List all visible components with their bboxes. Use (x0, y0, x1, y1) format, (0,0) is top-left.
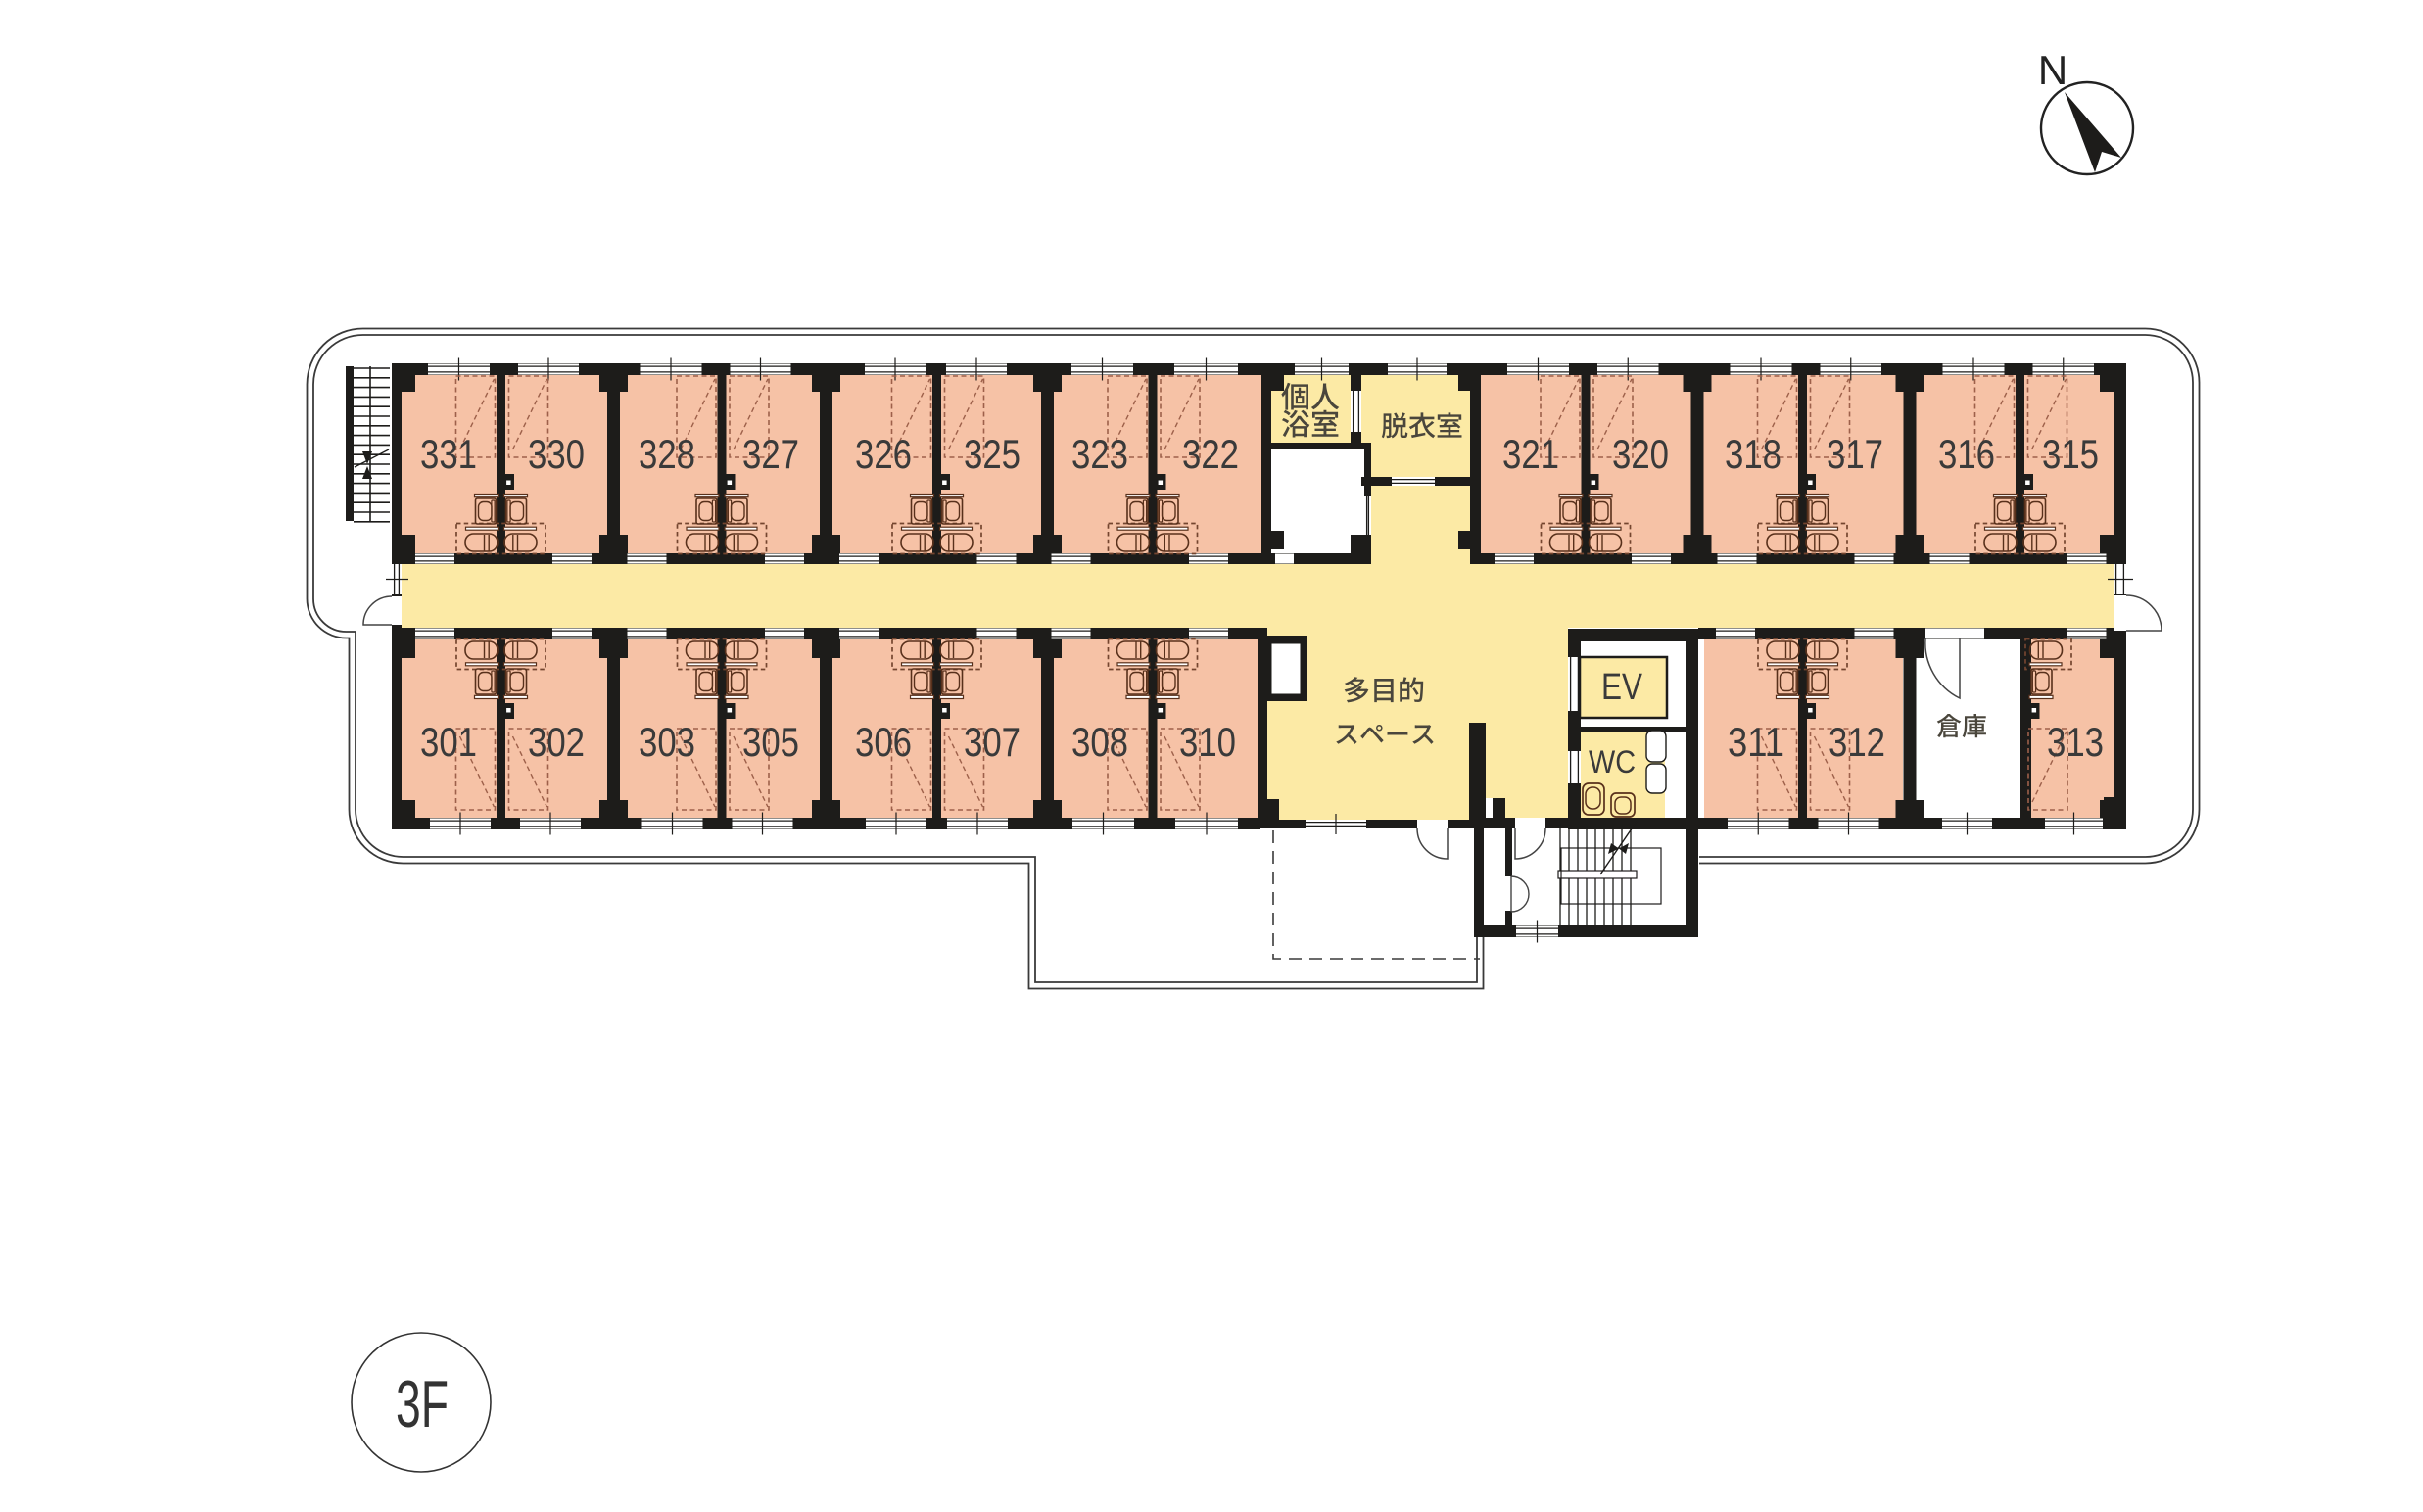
svg-text:322: 322 (1182, 431, 1239, 477)
svg-text:N: N (2038, 47, 2067, 93)
svg-text:327: 327 (742, 431, 799, 477)
svg-text:320: 320 (1612, 431, 1669, 477)
svg-text:303: 303 (639, 719, 695, 765)
svg-text:302: 302 (528, 719, 585, 765)
svg-text:331: 331 (420, 431, 477, 477)
svg-text:305: 305 (742, 719, 799, 765)
svg-text:306: 306 (855, 719, 912, 765)
svg-text:323: 323 (1071, 431, 1128, 477)
svg-text:312: 312 (1829, 719, 1885, 765)
svg-text:WC: WC (1589, 744, 1636, 780)
svg-text:321: 321 (1502, 431, 1559, 477)
svg-text:311: 311 (1728, 719, 1784, 765)
svg-text:3F: 3F (396, 1367, 449, 1441)
svg-text:301: 301 (420, 719, 477, 765)
svg-text:310: 310 (1179, 719, 1236, 765)
svg-text:315: 315 (2042, 431, 2099, 477)
svg-text:313: 313 (2047, 719, 2104, 765)
svg-text:318: 318 (1725, 431, 1782, 477)
svg-text:326: 326 (855, 431, 912, 477)
svg-text:EV: EV (1601, 667, 1643, 708)
svg-text:330: 330 (528, 431, 585, 477)
svg-text:317: 317 (1827, 431, 1883, 477)
svg-text:316: 316 (1938, 431, 1995, 477)
svg-text:307: 307 (964, 719, 1021, 765)
svg-text:328: 328 (639, 431, 695, 477)
svg-text:308: 308 (1071, 719, 1128, 765)
svg-text:325: 325 (964, 431, 1021, 477)
